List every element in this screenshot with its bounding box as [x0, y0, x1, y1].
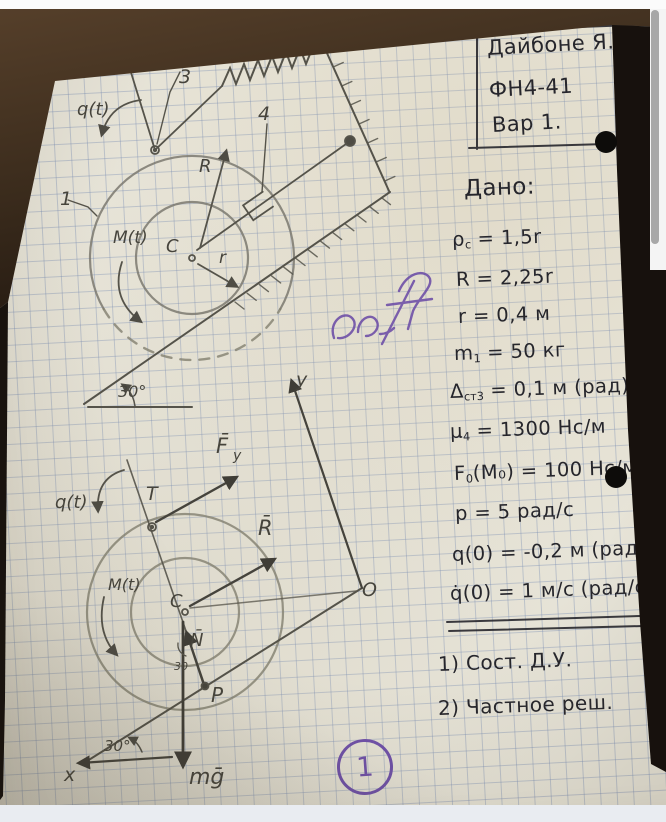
point-T-dot: [151, 526, 154, 529]
given-sub: ст3: [464, 390, 484, 404]
center-label: C: [166, 236, 179, 257]
incline-angle-label: 30°: [104, 737, 131, 755]
given-item: p = 5 рад/с: [455, 498, 575, 525]
outer-wheel-circle-dashed: [104, 309, 281, 360]
origin-label: O: [362, 579, 377, 601]
scrollbar-thumb[interactable]: [651, 10, 659, 244]
normal-force-label: N̄: [190, 629, 203, 651]
hole-punch-dot: [605, 466, 627, 488]
task-item: 1) Сост. Д.У.: [438, 647, 573, 676]
given-rest: = 2,25r: [470, 265, 554, 291]
section-separator-double-line: [447, 616, 643, 631]
given-rest: = 0,4 м: [466, 302, 551, 328]
signature-mark: [333, 273, 432, 344]
label-1-leader: [68, 200, 97, 216]
force-R-vector: [190, 560, 273, 606]
signature-loops: [333, 315, 394, 338]
contact-point-label: P: [211, 683, 224, 707]
bottom-diagram: q(t) T F̄ y R̄ M(t) C N̄ 30 P mḡ x 30° y…: [55, 369, 377, 790]
given-base: q̇(0): [450, 581, 492, 605]
q-coordinate-label: q(t): [77, 99, 110, 120]
given-base: Δ: [450, 380, 465, 403]
header-variant: Вар 1.: [491, 109, 562, 137]
page-content: q(t) 3 4 1 M(t) C R r 30°: [0, 0, 666, 822]
weight-label: mḡ: [189, 765, 224, 790]
given-base: m: [454, 341, 474, 365]
q-coordinate-arrow: [98, 470, 124, 510]
radius-r-arrow: [198, 264, 236, 286]
force-R-label: R̄: [258, 515, 273, 540]
label-4-leader: [262, 124, 267, 192]
moment-label: M(t): [113, 228, 148, 248]
given-heading: Дано:: [464, 174, 536, 202]
given-sub: c: [465, 238, 472, 251]
screenshot-root: q(t) 3 4 1 M(t) C R r 30°: [0, 0, 666, 822]
contact-point-dot: [202, 683, 209, 690]
given-sub: 4: [463, 430, 471, 443]
small-angle-label: 30: [174, 660, 188, 673]
inner-wheel-circle: [131, 558, 239, 666]
incline-angle-label: 30°: [118, 382, 146, 401]
label-3: 3: [179, 66, 191, 88]
spring: [222, 40, 318, 86]
x-axis-label: x: [63, 764, 76, 786]
given-rest: = 50 кг: [480, 338, 566, 364]
radius-small-label: r: [219, 248, 227, 268]
label-1: 1: [60, 188, 72, 210]
given-base: ρ: [452, 228, 466, 251]
y-axis-label: y: [295, 369, 308, 391]
given-base: R: [456, 268, 471, 291]
header-group: ФН4-41: [488, 74, 573, 102]
angle-arc-arrow: [130, 738, 142, 752]
given-base: q(0): [452, 542, 494, 566]
label-3-leader: [157, 72, 180, 144]
hole-punch-dot: [595, 131, 617, 153]
point-T-label: T: [146, 483, 159, 505]
top-diagram: q(t) 3 4 1 M(t) C R r 30°: [60, 22, 395, 407]
support-hatch-tuft: [117, 42, 143, 66]
wheel-center-pin: [189, 255, 195, 261]
given-item: m1 = 50 кг: [454, 338, 566, 365]
rim-pivot-dot: [154, 149, 157, 152]
moment-label: M(t): [108, 575, 141, 594]
given-item: R = 2,25r: [456, 265, 554, 291]
incline-hatching: [235, 198, 390, 309]
wall-pivot-blob: [345, 136, 355, 146]
given-base: F: [454, 462, 466, 485]
given-base: p: [455, 502, 469, 525]
given-rest: = 1,5r: [471, 225, 542, 250]
center-pin: [182, 609, 188, 615]
signature-flourish: [382, 273, 432, 344]
given-rest: = 5 рад/с: [467, 498, 574, 525]
given-item: r = 0,4 м: [458, 302, 551, 328]
outer-wheel-circle: [87, 514, 283, 710]
inner-wheel-circle: [136, 202, 248, 314]
spring-link: [155, 86, 222, 150]
page-number: 1: [355, 751, 374, 783]
force-Fy-label: F̄: [216, 433, 229, 458]
given-rest: = 1300 Нс/м: [470, 415, 607, 443]
label-4: 4: [258, 103, 270, 125]
support-rod: [129, 66, 155, 150]
given-sub: 1: [473, 352, 481, 365]
moment-arrow: [102, 597, 116, 654]
given-item: ρc = 1,5r: [452, 225, 542, 251]
bottom-margin-strip: [0, 805, 666, 822]
given-base: μ: [450, 420, 464, 443]
q-coordinate-label: q(t): [55, 492, 88, 513]
top-margin-strip: [0, 0, 666, 9]
force-Fy-sub-label: y: [232, 448, 242, 464]
y-axis: [292, 382, 362, 588]
given-sub: 0: [466, 472, 474, 485]
radius-big-label: R: [199, 156, 212, 177]
center-label: C: [170, 591, 183, 612]
